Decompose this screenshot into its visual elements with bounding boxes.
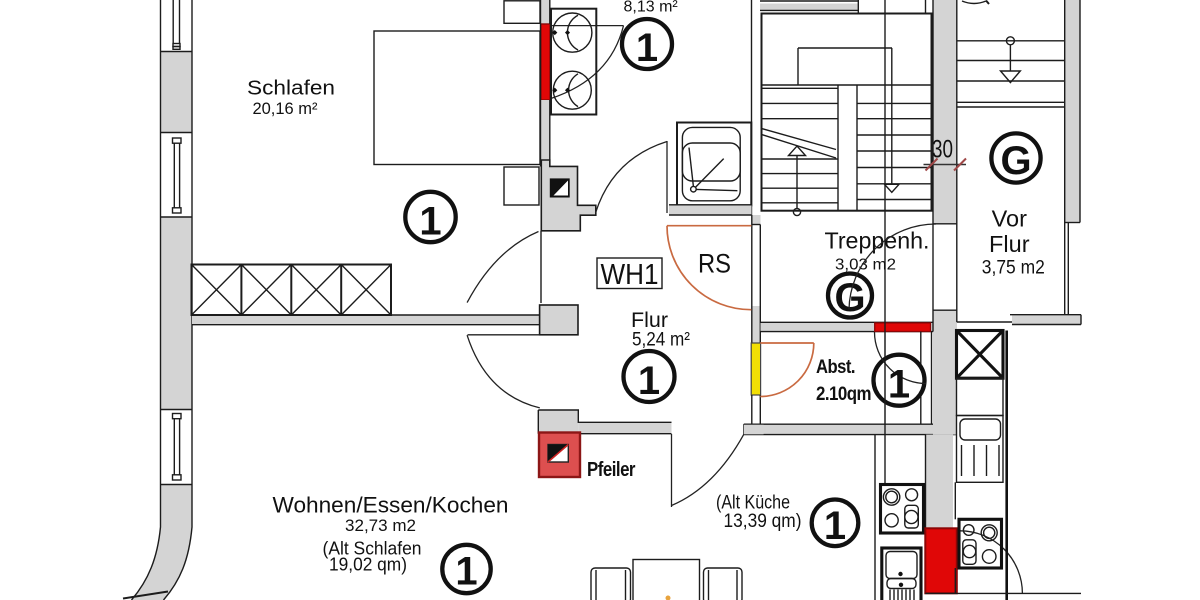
svg-text:RS: RS bbox=[698, 249, 731, 279]
svg-text:Vor: Vor bbox=[992, 206, 1027, 232]
svg-text:13,39 qm): 13,39 qm) bbox=[724, 511, 802, 532]
svg-text:1: 1 bbox=[419, 200, 441, 244]
svg-text:20,16 m²: 20,16 m² bbox=[252, 100, 318, 118]
svg-text:Treppenh.: Treppenh. bbox=[825, 228, 930, 254]
svg-text:8,13 m²: 8,13 m² bbox=[624, 0, 679, 16]
svg-text:Abst.: Abst. bbox=[816, 357, 855, 378]
svg-text:1: 1 bbox=[638, 359, 660, 403]
svg-text:Wohnen/Essen/Kochen: Wohnen/Essen/Kochen bbox=[273, 493, 509, 518]
svg-text:Schlafen: Schlafen bbox=[247, 77, 335, 100]
svg-text:Flur: Flur bbox=[631, 308, 668, 332]
svg-text:G: G bbox=[1000, 139, 1031, 183]
svg-text:1: 1 bbox=[824, 504, 846, 548]
svg-text:1: 1 bbox=[888, 363, 910, 407]
svg-text:WH1: WH1 bbox=[601, 259, 659, 291]
svg-text:Flur: Flur bbox=[989, 231, 1030, 257]
svg-text:5,24 m²: 5,24 m² bbox=[632, 330, 690, 351]
svg-text:1: 1 bbox=[455, 550, 477, 594]
svg-text:1: 1 bbox=[636, 26, 658, 70]
svg-text:3,75 m2: 3,75 m2 bbox=[982, 257, 1045, 279]
svg-text:19,02 qm): 19,02 qm) bbox=[329, 554, 407, 575]
svg-text:30: 30 bbox=[932, 136, 953, 164]
svg-text:32,73 m2: 32,73 m2 bbox=[345, 516, 416, 535]
svg-text:Pfeiler: Pfeiler bbox=[587, 459, 636, 481]
svg-text:2.10qm: 2.10qm bbox=[816, 384, 871, 405]
